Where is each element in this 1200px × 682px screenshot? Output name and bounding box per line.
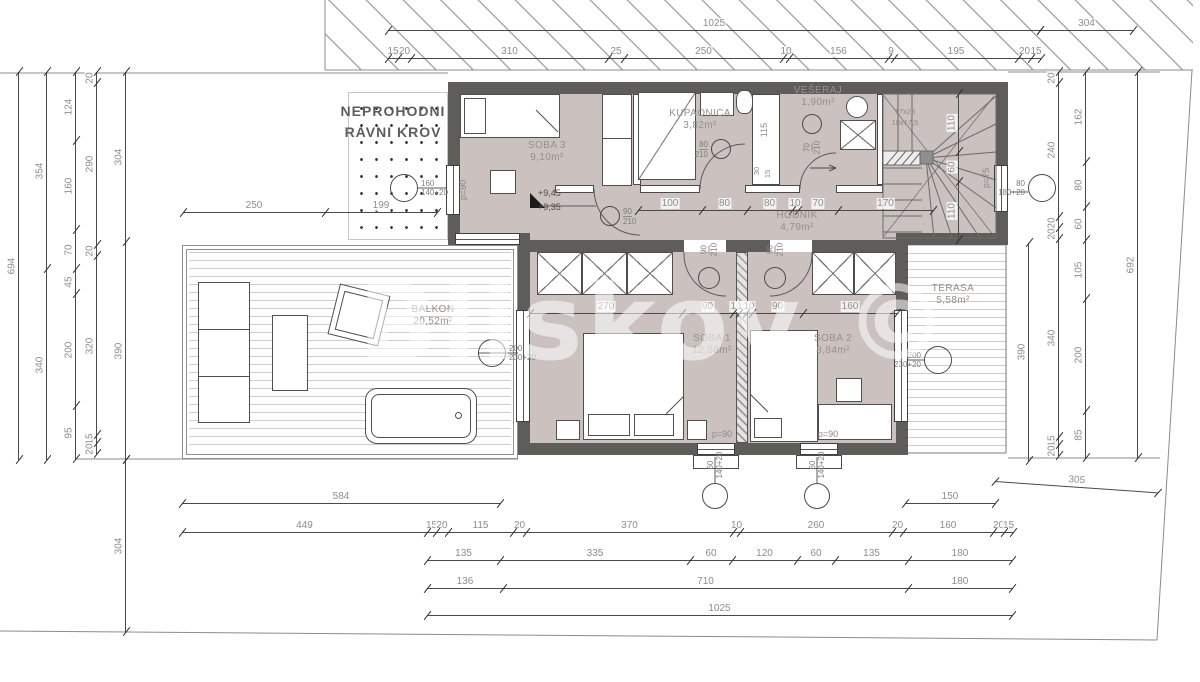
- dim-chain-T2: 304: [1040, 30, 1133, 31]
- opening-marker-label: 200230+20: [509, 344, 536, 362]
- marker-value-2: 230+20: [509, 353, 536, 362]
- marker-value-2: 180+20: [998, 188, 1025, 197]
- property-lines: [0, 0, 1193, 640]
- dim-label: 136: [456, 576, 475, 587]
- room-label-terasa: TERASA5,58m²: [932, 283, 974, 307]
- dim-label: 160: [939, 520, 958, 531]
- dim-label: 80: [1074, 178, 1085, 191]
- marker-value-1: 200: [509, 344, 522, 353]
- dim-label: 80: [763, 198, 776, 209]
- dim-chain-L4: 20290203201520: [96, 72, 97, 454]
- marker-value-2: 140+20: [715, 452, 724, 479]
- opening-marker-label: 60140+20: [706, 440, 724, 490]
- dim-chain-R4: 390: [1028, 243, 1029, 461]
- marker-value-1: 90: [766, 245, 776, 254]
- dim-chain-B1: 584: [182, 503, 500, 504]
- opening-marker: [1028, 174, 1056, 202]
- opening-marker-label: 200230+20: [877, 351, 921, 369]
- room-area: 20,52m²: [412, 316, 455, 328]
- dim-label: 1025: [702, 18, 726, 29]
- marker-value-1: 160: [421, 179, 434, 188]
- opening-marker: [478, 339, 506, 367]
- dim-label: 70: [64, 243, 75, 256]
- dim-label: 105: [1074, 260, 1085, 279]
- dim-label: 270: [597, 301, 616, 312]
- dim-label: 120: [755, 548, 774, 559]
- dim-label: 240: [1047, 141, 1058, 160]
- opening-marker-label: 160140+20: [421, 179, 448, 197]
- dim-chain-C1: 250199: [183, 212, 437, 213]
- dim-label: 20: [85, 442, 96, 455]
- dim-label: 162: [1074, 108, 1085, 127]
- dim-label: 304: [114, 537, 125, 556]
- room-area: 1,90m²: [794, 97, 842, 109]
- opening-marker-label: 90210: [623, 207, 636, 226]
- dim-label: 694: [7, 257, 18, 276]
- bed-fold-lines: [536, 110, 768, 414]
- marker-value-2: 230+20: [894, 360, 921, 369]
- marker-value-2: 210: [710, 243, 719, 256]
- dim-label: 340: [1047, 329, 1058, 348]
- room-area: 8,84m²: [814, 345, 852, 357]
- annotation-115: 115: [759, 108, 769, 152]
- dim-label: 115: [472, 520, 490, 531]
- dim-label: 20: [85, 244, 96, 257]
- dim-label: 370: [620, 520, 639, 531]
- dim-chain-R3: 692: [1137, 72, 1138, 458]
- dim-chain-L6: 304: [125, 460, 126, 632]
- dim-label: 20: [85, 71, 96, 84]
- marker-value-1: 80: [699, 140, 708, 150]
- room-area: 9,10m²: [528, 152, 566, 164]
- opening-marker: [711, 139, 731, 159]
- room-label-balkon: BALKON20,52m²: [412, 304, 455, 328]
- marker-value-2: 210: [776, 243, 785, 256]
- room-area: 4,79m²: [776, 222, 817, 234]
- dim-label: 340: [35, 355, 46, 374]
- marker-value-1: 60: [706, 461, 715, 470]
- dim-label: 124: [64, 97, 75, 116]
- dim-label: 160: [841, 301, 860, 312]
- dim-chain-R1: 2024020203401520: [1058, 72, 1059, 456]
- dim-label: 95: [64, 426, 75, 439]
- annotation-p-90: p=90: [806, 429, 850, 439]
- dim-label: 135: [454, 548, 473, 559]
- annotation--9-35: +9,35: [538, 202, 582, 212]
- dim-label: 304: [1077, 18, 1096, 29]
- dim-chain-B5: 136710180: [427, 588, 1012, 589]
- room-label-soba-3: SOBA 39,10m²: [528, 140, 566, 164]
- dim-label: 449: [295, 520, 314, 531]
- dim-label: 320: [85, 336, 96, 355]
- dim-chain-T3: 1520310252501015691952015: [388, 58, 1041, 59]
- room-name: TERASA: [932, 283, 974, 295]
- terrace-edges: [908, 245, 1006, 453]
- floor-plan-canvas: NEPROHODNI RAVNI KROV: [0, 0, 1200, 682]
- opening-marker-label: 60140+20: [808, 440, 826, 490]
- dim-label: 170: [876, 198, 895, 209]
- dim-label: 60: [1074, 217, 1085, 230]
- dim-label: 110: [947, 202, 958, 220]
- dim-label: 335: [586, 548, 605, 559]
- dim-chain-L1: 694: [18, 72, 19, 460]
- dim-label: 200: [64, 341, 75, 360]
- room-area: 12,58m²: [692, 345, 732, 357]
- dim-label: 45: [64, 275, 75, 288]
- opening-marker-label: 90210: [700, 225, 719, 275]
- dim-chain-C3: 2709010101090160: [530, 313, 897, 314]
- dim-label: 150: [941, 491, 960, 502]
- dim-label: 200: [1074, 346, 1085, 365]
- dim-chain-L2: 354340: [46, 72, 47, 460]
- dim-label: 70: [811, 198, 824, 209]
- dim-label: 60: [947, 160, 958, 173]
- dim-label: 310: [500, 46, 519, 57]
- dim-label: 250: [694, 46, 713, 57]
- room-name: HODNIK: [776, 210, 817, 222]
- dim-label: 20: [1047, 227, 1058, 240]
- marker-value-2: 210: [695, 150, 708, 159]
- marker-value-2: 140+20: [421, 188, 448, 197]
- marker-value-1: 80: [1016, 179, 1025, 188]
- dim-label: 156: [829, 46, 848, 57]
- annotation-18x17-5: 18x17,5: [883, 118, 927, 128]
- dim-label: 710: [696, 576, 715, 587]
- dim-label: 20: [1047, 444, 1058, 457]
- room-label-vešeraj: VEŠERAJ1,90m²: [794, 85, 842, 109]
- dim-label: 160: [64, 176, 75, 195]
- room-area: 3,82m²: [669, 120, 731, 132]
- dim-label: 199: [372, 200, 391, 211]
- dim-label: 90: [701, 301, 714, 312]
- marker-value-2: 210: [813, 141, 822, 154]
- room-name: BALKON: [412, 304, 455, 316]
- marker-value-1: 90: [700, 245, 710, 254]
- dim-label: 110: [947, 114, 958, 132]
- dim-label: 180: [951, 548, 970, 559]
- marker-value-1: 70: [803, 143, 813, 152]
- opening-marker: [600, 206, 620, 226]
- annotation-p-90: p=90: [700, 429, 744, 439]
- room-name: VEŠERAJ: [794, 85, 842, 97]
- dim-label: 390: [1017, 343, 1028, 362]
- dim-label: 15: [1029, 46, 1042, 57]
- dim-label: 290: [85, 155, 96, 174]
- marker-value-2: 210: [623, 217, 636, 226]
- marker-value-2: 140+20: [817, 452, 826, 479]
- annotation-p-90: p=90: [458, 168, 468, 212]
- dim-chain-S1: 11060110: [958, 94, 959, 240]
- dim-label: 90: [771, 301, 784, 312]
- room-label-kupaonica: KUPAONICA3,82m²: [669, 108, 731, 132]
- dim-label: 60: [704, 548, 717, 559]
- dim-label: 15: [1002, 520, 1015, 531]
- dim-label: 584: [332, 491, 351, 502]
- annotation-17x28: 17x28: [883, 107, 927, 117]
- dim-label: 100: [661, 198, 680, 209]
- dim-label: 354: [35, 161, 46, 180]
- room-name: SOBA 3: [528, 140, 566, 152]
- dim-label: 692: [1126, 256, 1137, 275]
- dim-label: 304: [114, 148, 125, 167]
- dim-label: 390: [114, 342, 125, 361]
- dim-chain-L5: 304390: [125, 72, 126, 460]
- dim-label: 80: [718, 198, 731, 209]
- marker-value-1: 60: [808, 461, 817, 470]
- dim-chain-B2: 150: [905, 503, 995, 504]
- opening-marker-label: 70210: [803, 123, 822, 173]
- dim-label: 250: [245, 200, 264, 211]
- dim-chain-B3: 44915201152037010260201602015: [182, 532, 1013, 533]
- room-name: SOBA 2: [814, 333, 852, 345]
- dim-label: 60: [809, 548, 822, 559]
- annotation-15: 15: [763, 152, 773, 196]
- annotation-p-75: p=75: [981, 156, 991, 200]
- room-label-soba-1: SOBA 112,58m²: [692, 333, 732, 357]
- room-label-hodnik: HODNIK4,79m²: [776, 210, 817, 234]
- marker-value-1: 200: [908, 351, 921, 360]
- dim-chain-B4: 1353356012060135180: [427, 560, 1012, 561]
- annotation-30: 30: [752, 149, 762, 193]
- opening-marker-label: 80210: [664, 140, 708, 159]
- dim-label: 305: [1067, 474, 1086, 486]
- dim-label: 1025: [707, 603, 731, 614]
- dim-label: 180: [951, 576, 970, 587]
- opening-marker: [924, 346, 952, 374]
- dim-label: 20: [1047, 71, 1058, 84]
- dim-label: 195: [947, 46, 966, 57]
- dim-chain-R2: 162806010520085: [1085, 72, 1086, 458]
- linework-layer: [0, 0, 1200, 682]
- dim-label: 260: [807, 520, 826, 531]
- dim-label: 135: [862, 548, 881, 559]
- room-name: SOBA 1: [692, 333, 732, 345]
- room-name: KUPAONICA: [669, 108, 731, 120]
- annotation--9-45: +9,45: [538, 188, 582, 198]
- dim-chain-L3: 124160704520095: [75, 72, 76, 459]
- marker-value-1: 90: [623, 207, 632, 217]
- opening-marker: [390, 174, 418, 202]
- dim-chain-B6: 1025: [427, 615, 1012, 616]
- dim-label: 85: [1074, 428, 1085, 441]
- room-area: 5,58m²: [932, 295, 974, 307]
- dim-chain-T1: 1025: [388, 30, 1040, 31]
- room-label-soba-2: SOBA 28,84m²: [814, 333, 852, 357]
